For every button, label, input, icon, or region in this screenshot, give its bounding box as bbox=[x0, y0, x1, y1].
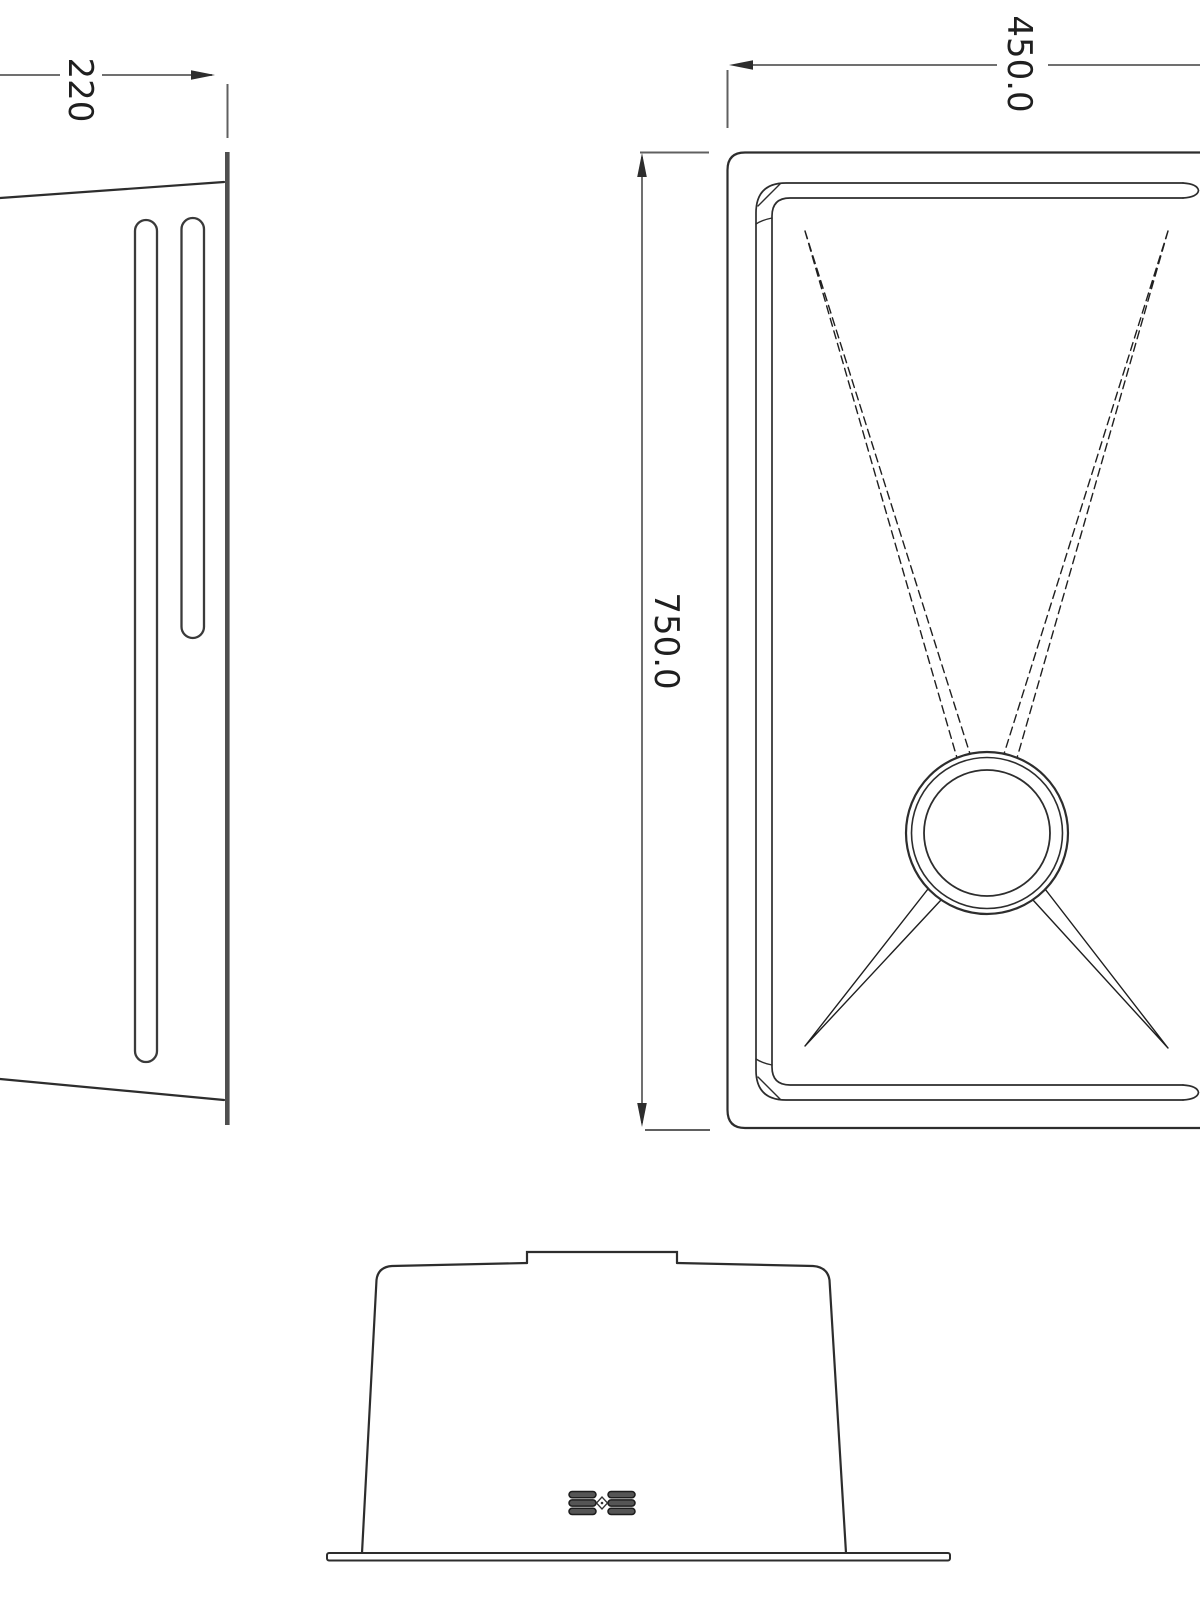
side-view: 220 bbox=[0, 58, 228, 1125]
drain-outer-circle bbox=[906, 752, 1068, 914]
crease-bottom-left bbox=[805, 889, 941, 1046]
dim-label-plan-length: 750.0 bbox=[646, 592, 686, 689]
crease-top-left bbox=[805, 231, 970, 758]
crease-bottom-right bbox=[1033, 889, 1168, 1048]
dim-arrow-right-icon bbox=[191, 70, 215, 80]
dimension-750: 750.0 bbox=[637, 153, 710, 1131]
front-right-side bbox=[677, 1263, 846, 1553]
dim-label-plan-width: 450.0 bbox=[999, 15, 1039, 112]
corner-blend-top-left bbox=[756, 218, 772, 224]
drawing-sheet: 220 450.0 750.0 bbox=[0, 0, 1200, 1600]
brand-logo bbox=[569, 1492, 635, 1515]
bowl-rim-right-cap-bottom bbox=[1183, 1085, 1199, 1100]
dim-arrow-down-icon bbox=[637, 1103, 647, 1127]
drain-middle-circle bbox=[912, 758, 1063, 909]
logo-bar-left-3 bbox=[569, 1508, 596, 1514]
front-view bbox=[327, 1252, 950, 1561]
dimension-220: 220 bbox=[0, 58, 228, 138]
side-groove-long bbox=[135, 220, 157, 1062]
logo-bar-right-3 bbox=[608, 1508, 635, 1514]
side-bottom-edge bbox=[0, 1079, 224, 1100]
dimension-450: 450.0 bbox=[728, 15, 1200, 128]
corner-blend-bottom-left bbox=[756, 1059, 772, 1065]
logo-bar-right-2 bbox=[608, 1500, 635, 1506]
logo-bar-left-2 bbox=[569, 1500, 596, 1506]
plan-outer-flange bbox=[728, 153, 1200, 1129]
logo-bar-right-1 bbox=[608, 1492, 635, 1498]
dim-label-side-depth: 220 bbox=[60, 58, 100, 123]
side-groove-short bbox=[182, 218, 205, 638]
front-base-flange bbox=[327, 1553, 950, 1561]
front-left-side bbox=[362, 1263, 527, 1553]
logo-diamond-dot bbox=[601, 1502, 604, 1505]
logo-bar-left-1 bbox=[569, 1492, 596, 1498]
drain-circles bbox=[906, 752, 1068, 914]
side-top-edge bbox=[0, 182, 224, 198]
drain-crease-lines bbox=[805, 231, 1168, 1048]
bowl-rim-outer bbox=[756, 183, 1183, 1100]
front-top-notch bbox=[527, 1252, 677, 1263]
plan-view: 450.0 750.0 bbox=[637, 15, 1200, 1130]
dim-arrow-up-icon bbox=[637, 153, 647, 177]
dim-arrow-left-icon bbox=[729, 60, 753, 70]
bowl-corner-details bbox=[756, 184, 780, 1099]
crease-top-right bbox=[1004, 231, 1168, 758]
drain-inner-circle bbox=[924, 770, 1050, 896]
bowl-rim-right-cap-top bbox=[1183, 183, 1199, 198]
